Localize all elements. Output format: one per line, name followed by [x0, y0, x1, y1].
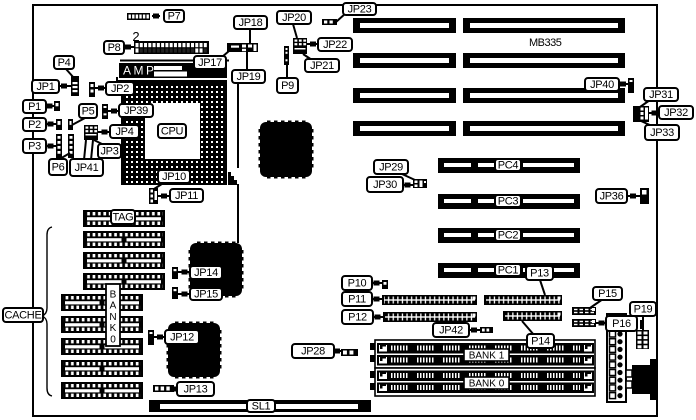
svg-text:JP2: JP2: [111, 83, 129, 95]
svg-text:JP10: JP10: [162, 171, 186, 183]
svg-text:JP12: JP12: [170, 332, 194, 344]
svg-text:JP33: JP33: [650, 127, 674, 139]
svg-text:JP39: JP39: [124, 105, 148, 117]
svg-text:BANK 1: BANK 1: [469, 351, 505, 362]
svg-text:P9: P9: [281, 80, 294, 92]
svg-text:JP21: JP21: [310, 60, 334, 72]
svg-text:P12: P12: [348, 312, 367, 324]
svg-text:P7: P7: [168, 11, 181, 23]
svg-text:BANK 0: BANK 0: [469, 379, 505, 390]
svg-text:PC2: PC2: [498, 230, 519, 242]
svg-text:MB335: MB335: [529, 37, 562, 49]
svg-text:N: N: [109, 312, 116, 323]
svg-text:P15: P15: [598, 288, 617, 300]
svg-text:P14: P14: [531, 336, 550, 348]
svg-text:AMP: AMP: [123, 64, 157, 78]
svg-text:CACHE: CACHE: [4, 310, 41, 322]
svg-text:JP32: JP32: [664, 107, 688, 119]
svg-text:SL1: SL1: [252, 401, 271, 413]
svg-text:TAG: TAG: [113, 212, 134, 224]
svg-text:P5: P5: [82, 106, 95, 118]
svg-text:P4: P4: [58, 57, 71, 69]
svg-text:JP14: JP14: [194, 267, 218, 279]
svg-text:P19: P19: [634, 304, 653, 316]
svg-text:JP11: JP11: [175, 190, 198, 202]
svg-text:JP1: JP1: [36, 81, 54, 93]
svg-text:JP20: JP20: [282, 12, 306, 24]
svg-text:JP3: JP3: [100, 146, 118, 158]
svg-text:JP15: JP15: [194, 289, 218, 301]
svg-text:P8: P8: [108, 42, 121, 54]
svg-text:JP40: JP40: [590, 79, 614, 91]
svg-text:JP19: JP19: [237, 71, 261, 83]
svg-text:A: A: [110, 301, 117, 312]
svg-text:P10: P10: [348, 278, 367, 290]
svg-text:JP13: JP13: [184, 384, 208, 396]
svg-text:JP41: JP41: [75, 162, 99, 174]
svg-text:JP29: JP29: [379, 162, 403, 174]
svg-text:K: K: [110, 323, 117, 334]
svg-text:P3: P3: [28, 141, 41, 153]
svg-text:JP30: JP30: [373, 179, 397, 191]
svg-text:JP18: JP18: [239, 17, 263, 29]
svg-text:P6: P6: [52, 162, 65, 174]
svg-text:P2: P2: [28, 119, 41, 131]
svg-text:B: B: [110, 290, 117, 301]
svg-text:JP23: JP23: [348, 4, 372, 16]
svg-text:PC4: PC4: [498, 160, 519, 172]
svg-text:PC3: PC3: [498, 196, 519, 208]
svg-text:P13: P13: [530, 268, 549, 280]
svg-text:JP42: JP42: [439, 325, 463, 337]
svg-text:JP22: JP22: [323, 39, 347, 51]
svg-text:P1: P1: [28, 101, 41, 113]
svg-text:CPU: CPU: [161, 126, 184, 138]
svg-text:JP31: JP31: [649, 89, 673, 101]
svg-text:PC1: PC1: [498, 265, 519, 277]
svg-text:JP4: JP4: [115, 126, 133, 138]
svg-text:P16: P16: [612, 318, 631, 330]
svg-text:JP36: JP36: [600, 191, 624, 203]
svg-text:JP17: JP17: [198, 57, 222, 69]
svg-text:0: 0: [110, 334, 116, 345]
svg-text:JP28: JP28: [301, 346, 325, 358]
svg-text:P11: P11: [348, 294, 366, 306]
